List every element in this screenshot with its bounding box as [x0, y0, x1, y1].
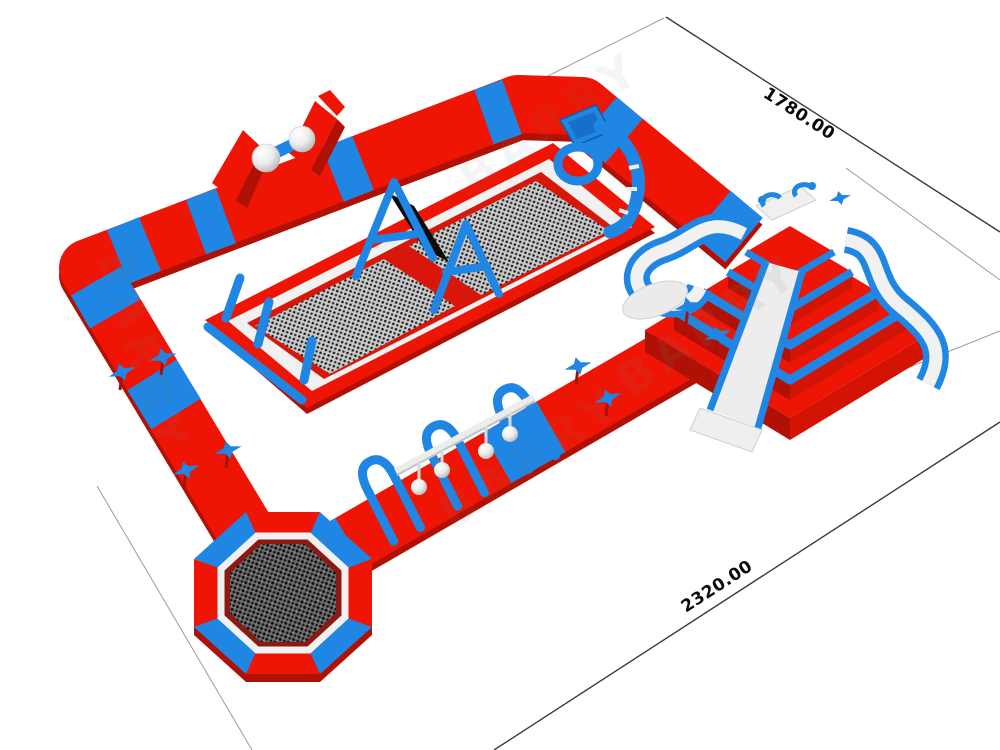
walk-ball-1 [252, 144, 280, 172]
dimension-label-depth: 1780.00 [760, 84, 839, 145]
walk-ball-2 [289, 126, 315, 152]
octagon-mesh [230, 544, 336, 642]
pyramid-slide-tower [618, 182, 936, 452]
dimension-line-length [494, 422, 1000, 750]
render-canvas: BARRY BARRY BARRY BARRY 1780.00 2320.00 [0, 0, 1000, 750]
water-park-3d-render: BARRY BARRY BARRY BARRY 1780.00 2320.00 [0, 0, 1000, 750]
octagon-trampoline [194, 512, 372, 682]
pyramid-summit [756, 182, 853, 220]
